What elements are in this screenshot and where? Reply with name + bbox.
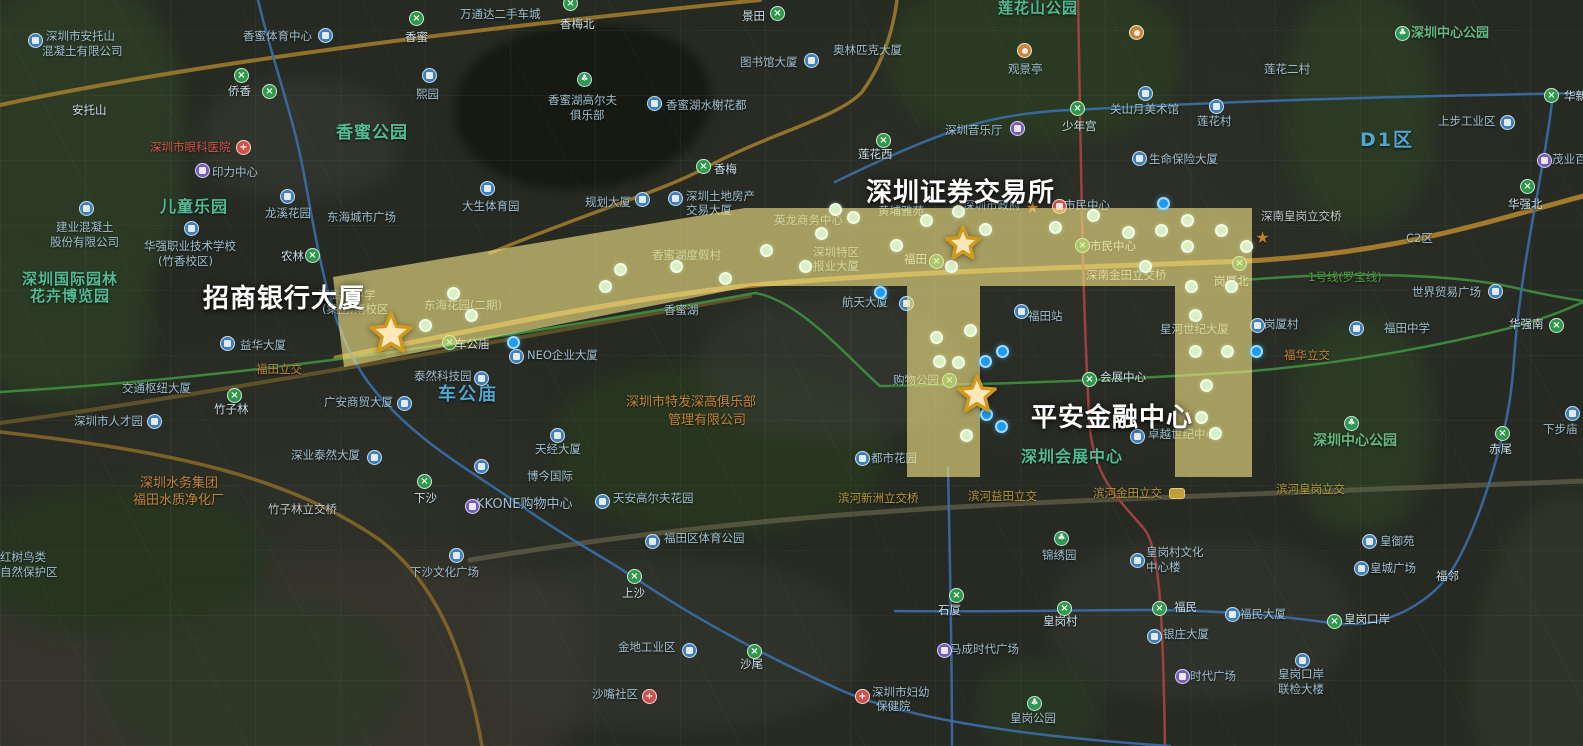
marker-dot-green bbox=[719, 272, 732, 285]
marker-dot-green bbox=[670, 260, 683, 273]
marker-dot-green bbox=[964, 324, 977, 337]
marker-dot-green bbox=[1155, 224, 1168, 237]
marker-dot-blue bbox=[1250, 345, 1263, 358]
marker-dot-blue bbox=[1157, 197, 1170, 210]
marker-dot-blue bbox=[996, 345, 1009, 358]
poi-callout-label: 深圳证券交易所 bbox=[866, 172, 1055, 209]
annotation-layer: 招商银行大厦深圳证券交易所平安金融中心 bbox=[0, 0, 1583, 746]
marker-dot-green bbox=[1181, 214, 1194, 227]
marker-dot-green bbox=[1240, 240, 1253, 253]
star-marker[interactable] bbox=[356, 299, 426, 369]
marker-dot-green bbox=[829, 203, 842, 216]
marker-dot-green bbox=[447, 287, 460, 300]
poi-callout-label: 招商银行大厦 bbox=[203, 278, 365, 315]
marker-dot-green bbox=[599, 280, 612, 293]
marker-dot-green bbox=[1225, 280, 1238, 293]
star-marker[interactable] bbox=[928, 209, 998, 279]
marker-dot-green bbox=[1209, 427, 1222, 440]
marker-dot-green bbox=[1122, 226, 1135, 239]
marker-dot-green bbox=[1185, 280, 1198, 293]
marker-dot-blue bbox=[507, 336, 520, 349]
marker-dot-green bbox=[1200, 379, 1213, 392]
marker-dot-green bbox=[930, 331, 943, 344]
marker-dot-green bbox=[1087, 209, 1100, 222]
marker-dot-green bbox=[1139, 260, 1152, 273]
marker-dot-green bbox=[1221, 345, 1234, 358]
star-marker[interactable] bbox=[942, 360, 1012, 430]
marker-dot-green bbox=[1189, 309, 1202, 322]
marker-dot-blue bbox=[874, 286, 887, 299]
marker-dot-green bbox=[890, 239, 903, 252]
marker-dot-green bbox=[799, 260, 812, 273]
marker-dot-green bbox=[1215, 224, 1228, 237]
marker-dot-green bbox=[1189, 345, 1202, 358]
marker-dot-green bbox=[815, 227, 828, 240]
marker-dot-green bbox=[465, 309, 478, 322]
marker-dot-green bbox=[760, 244, 773, 257]
marker-dot-green bbox=[614, 263, 627, 276]
marker-dot-green bbox=[960, 429, 973, 442]
marker-dot-green bbox=[1049, 221, 1062, 234]
marker-dot-green bbox=[847, 211, 860, 224]
satellite-map[interactable]: 深圳市安托山混凝土有限公司香蜜体育中心侨香安托山万通达二手车城香梅北香蜜景田熙园… bbox=[0, 0, 1583, 746]
marker-dot-green bbox=[1195, 411, 1208, 424]
poi-callout-label: 平安金融中心 bbox=[1031, 397, 1193, 434]
marker-dot-green bbox=[1181, 240, 1194, 253]
